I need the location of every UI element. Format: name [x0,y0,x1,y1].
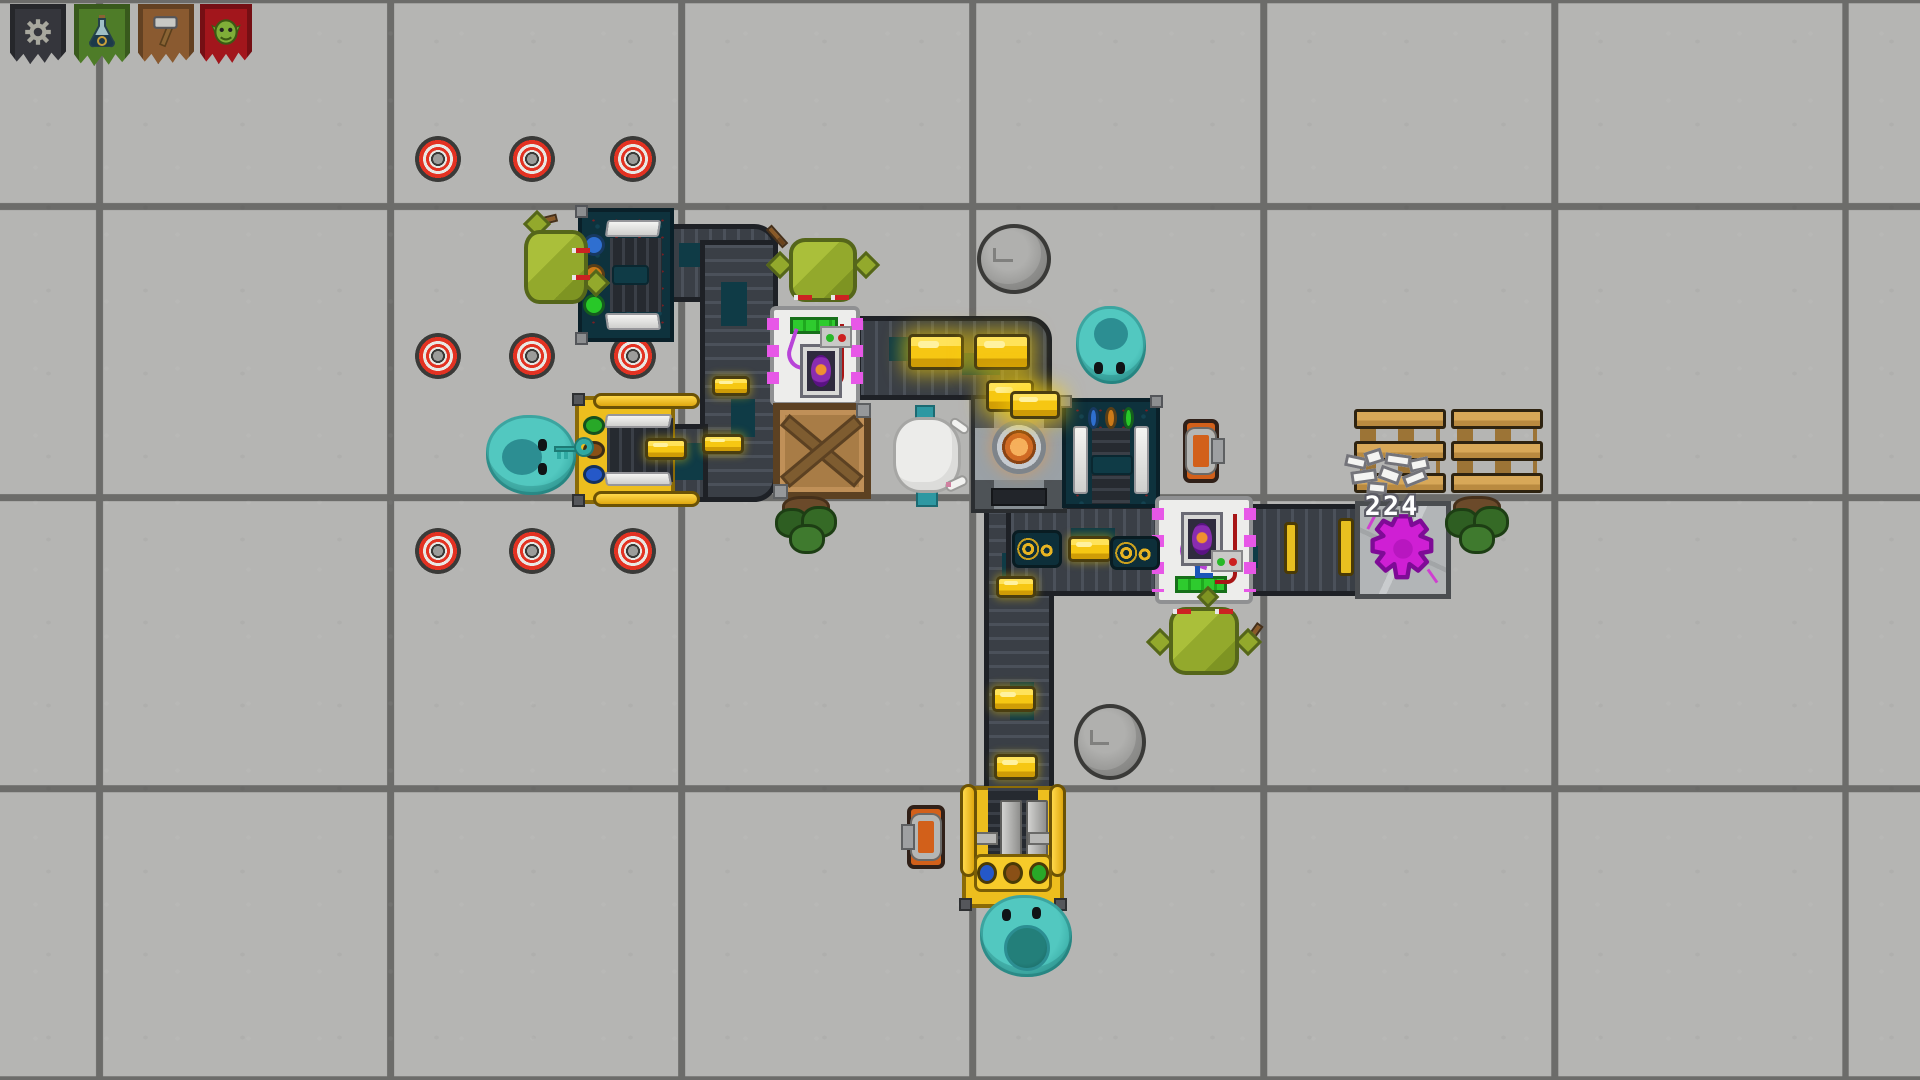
goblin-eye [576,248,590,253]
key-bow [576,439,592,455]
slime-spot [502,439,542,475]
key-item [554,437,592,461]
wooden-crate[interactable] [773,403,871,499]
goblin-eye [835,295,849,300]
banner-hammer[interactable] [138,4,194,68]
connector-pins [851,318,863,394]
bush[interactable] [1445,492,1509,560]
indicator-light [1029,862,1049,884]
slime[interactable] [1074,304,1148,386]
gold-bar[interactable] [992,686,1036,712]
toolbox-item[interactable] [1183,419,1219,483]
goblin-body [524,230,588,304]
roller [604,472,672,486]
output-slot [991,488,1047,506]
control-panel [1211,550,1243,572]
target-mine[interactable] [415,333,461,379]
gold-bar[interactable] [1068,536,1112,562]
sheep-nose [946,482,951,487]
scrap-piece [1402,468,1429,488]
bolt [575,205,588,218]
belt-plate [1091,455,1132,475]
key-tooth [557,452,561,459]
indicator-light [1105,407,1116,429]
gold-bar[interactable] [1010,391,1060,419]
indicator-light [1003,862,1023,884]
flask-icon [85,14,119,52]
gilded-plate[interactable] [1012,530,1062,568]
goblin[interactable] [1159,597,1249,685]
banner-flask[interactable] [74,4,130,70]
bolt [1150,395,1163,408]
bolt [1059,395,1072,408]
goblin-eye [1177,609,1191,614]
slime-eye [538,439,547,451]
purple-creature[interactable] [1368,512,1438,588]
banner-cloth [200,4,252,68]
banner-gear[interactable] [10,4,66,68]
goblin[interactable] [514,220,598,314]
indicator-light [583,465,605,484]
item-stack[interactable]: 224 [1341,448,1443,514]
slime-eye [538,463,547,475]
gold-bar[interactable] [974,334,1030,370]
wooden-pallet[interactable] [1451,409,1543,497]
floor-grid [0,0,1920,1080]
belt-clamp [1284,522,1298,574]
leaves [1459,524,1495,554]
leaves [789,524,825,554]
bolt [959,898,972,911]
target-mine[interactable] [610,528,656,574]
goblin-eye [576,275,590,280]
connector-pins [1244,508,1256,592]
hammer-icon [149,14,183,50]
purple-gem [1192,523,1212,555]
goblin-face-icon [209,15,243,49]
slime-eye [1002,909,1011,921]
slime[interactable] [484,413,578,497]
banner-cloth [10,4,66,68]
goblin[interactable] [779,228,867,312]
connector-pins [767,318,779,394]
slime-eye [1116,362,1125,374]
purple-gem [811,355,831,387]
indicator-light [1123,407,1134,429]
control-panel [820,326,852,348]
roller [604,414,672,428]
gold-bar[interactable] [996,576,1036,598]
ember-port [992,420,1046,474]
toolbox-item[interactable] [907,805,945,869]
belt-plate [612,265,649,285]
sheep[interactable] [889,407,965,505]
banner-cloth [138,4,194,68]
press-machine[interactable] [962,786,1064,908]
pallet-plank [1354,409,1446,429]
goblin-body [1169,607,1239,675]
roller [605,220,661,237]
pallet-plank [1451,409,1543,429]
banner-goblin[interactable] [200,4,252,68]
target-mine[interactable] [415,528,461,574]
rail [593,491,700,507]
target-mine[interactable] [415,136,461,182]
banner-cloth [74,4,130,70]
goblin-body [789,238,857,302]
status-lights [1088,407,1134,429]
control-panel [974,854,1052,892]
goblin-eye [798,295,812,300]
stack-count-label: 224 [1341,491,1443,522]
roller [1134,426,1149,494]
unloader-machine[interactable] [1062,398,1160,508]
gold-bar[interactable] [908,334,964,370]
assembler-machine[interactable] [770,306,860,406]
bolt [572,393,585,406]
slime-spot [1094,318,1128,350]
belt-clamp [1338,518,1354,576]
gilded-plate[interactable] [1110,536,1160,570]
goblin-eye [1219,609,1233,614]
target-mine[interactable] [509,528,555,574]
target-mine[interactable] [509,333,555,379]
slime-mouth [1004,925,1050,971]
gold-bar[interactable] [994,754,1038,780]
bush[interactable] [775,492,837,562]
indicator-light [977,862,997,884]
key-tooth [564,452,568,459]
indicator-light [1088,407,1099,429]
gold-bar[interactable] [702,434,744,454]
gold-bar[interactable] [645,438,687,460]
boulder[interactable] [977,224,1051,294]
gear-icon [22,15,54,49]
slime-eye [1094,362,1103,374]
slime[interactable] [978,893,1074,979]
target-mine[interactable] [610,136,656,182]
amulet-item [800,344,842,398]
indicator-light [583,416,605,435]
gold-bar[interactable] [712,376,750,396]
roller [605,313,661,330]
game-viewport: 224 [0,0,1920,1080]
target-mine[interactable] [509,136,555,182]
slime-eye [1032,907,1041,919]
rail [593,393,700,409]
corner-cap [856,403,871,418]
roller [1073,426,1088,494]
boulder[interactable] [1074,704,1146,780]
bolt [575,332,588,345]
pallet-plank [1451,473,1543,493]
pallet-plank [1451,441,1543,461]
